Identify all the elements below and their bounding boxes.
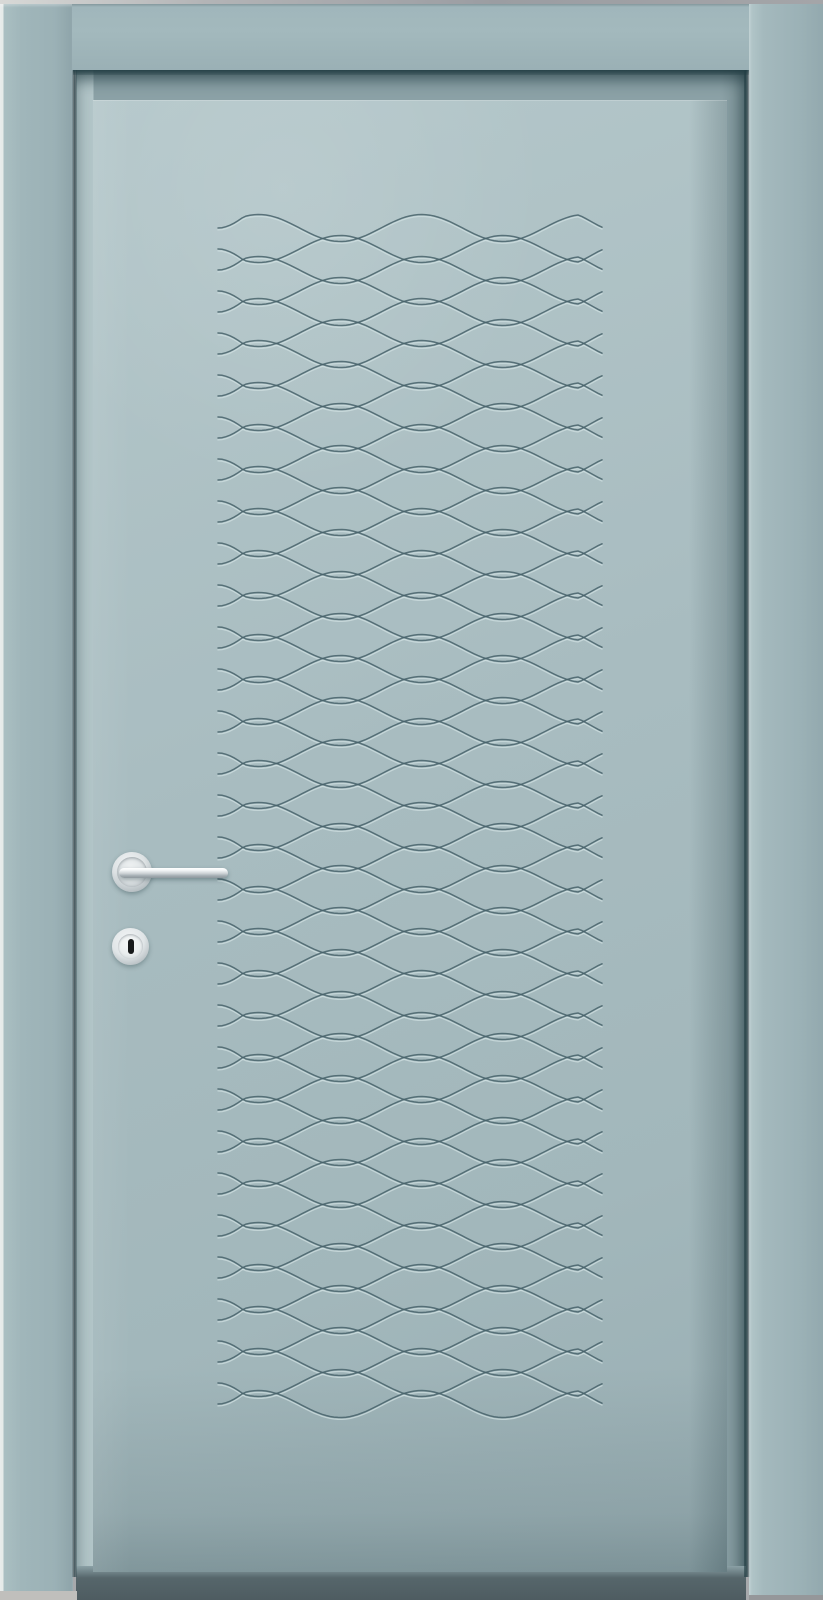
floor-strip-left (0, 1591, 77, 1600)
door-product-render (0, 0, 823, 1600)
door-leaf (93, 100, 727, 1572)
frame-seam-left (72, 70, 77, 1577)
keyhole-slot (128, 939, 134, 954)
lever-handle (119, 868, 228, 878)
floor-strip-right (749, 1595, 823, 1600)
keyhole-escutcheon (112, 928, 149, 965)
door-frame-architrave-left (0, 4, 73, 1592)
frame-seam-right (744, 70, 750, 1577)
door-frame-architrave-head (72, 4, 750, 71)
frame-seam-top (73, 70, 749, 75)
door-frame-architrave-right (749, 4, 823, 1596)
